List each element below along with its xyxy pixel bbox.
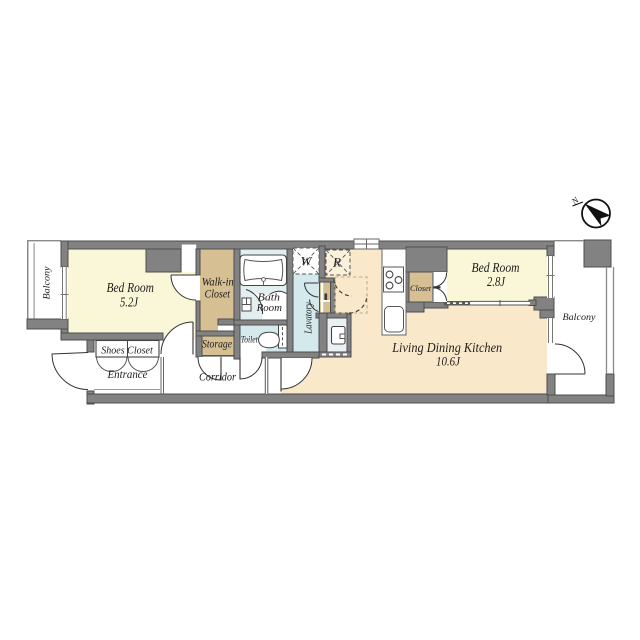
svg-text:Balcony: Balcony [43, 266, 53, 300]
svg-text:Walk-in: Walk-in [202, 277, 234, 289]
svg-text:Room: Room [256, 302, 282, 314]
svg-text:Shoes Closet: Shoes Closet [101, 345, 154, 356]
svg-text:Closet: Closet [205, 288, 231, 300]
svg-text:5.2J: 5.2J [120, 294, 139, 309]
svg-text:Bed Room: Bed Room [106, 280, 154, 295]
svg-text:Corridor: Corridor [199, 372, 236, 384]
svg-text:Balcony: Balcony [563, 313, 597, 323]
svg-text:2.8J: 2.8J [487, 274, 506, 289]
svg-text:Lavatory: Lavatory [304, 302, 315, 335]
svg-text:10.6J: 10.6J [436, 354, 461, 369]
svg-text:R: R [332, 255, 341, 270]
svg-text:W: W [301, 254, 313, 269]
svg-text:Entrance: Entrance [107, 369, 148, 381]
svg-text:Bed Room: Bed Room [472, 260, 520, 275]
svg-text:Toilet: Toilet [241, 335, 258, 345]
svg-text:Closet: Closet [410, 284, 432, 293]
svg-text:Storage: Storage [202, 339, 232, 351]
